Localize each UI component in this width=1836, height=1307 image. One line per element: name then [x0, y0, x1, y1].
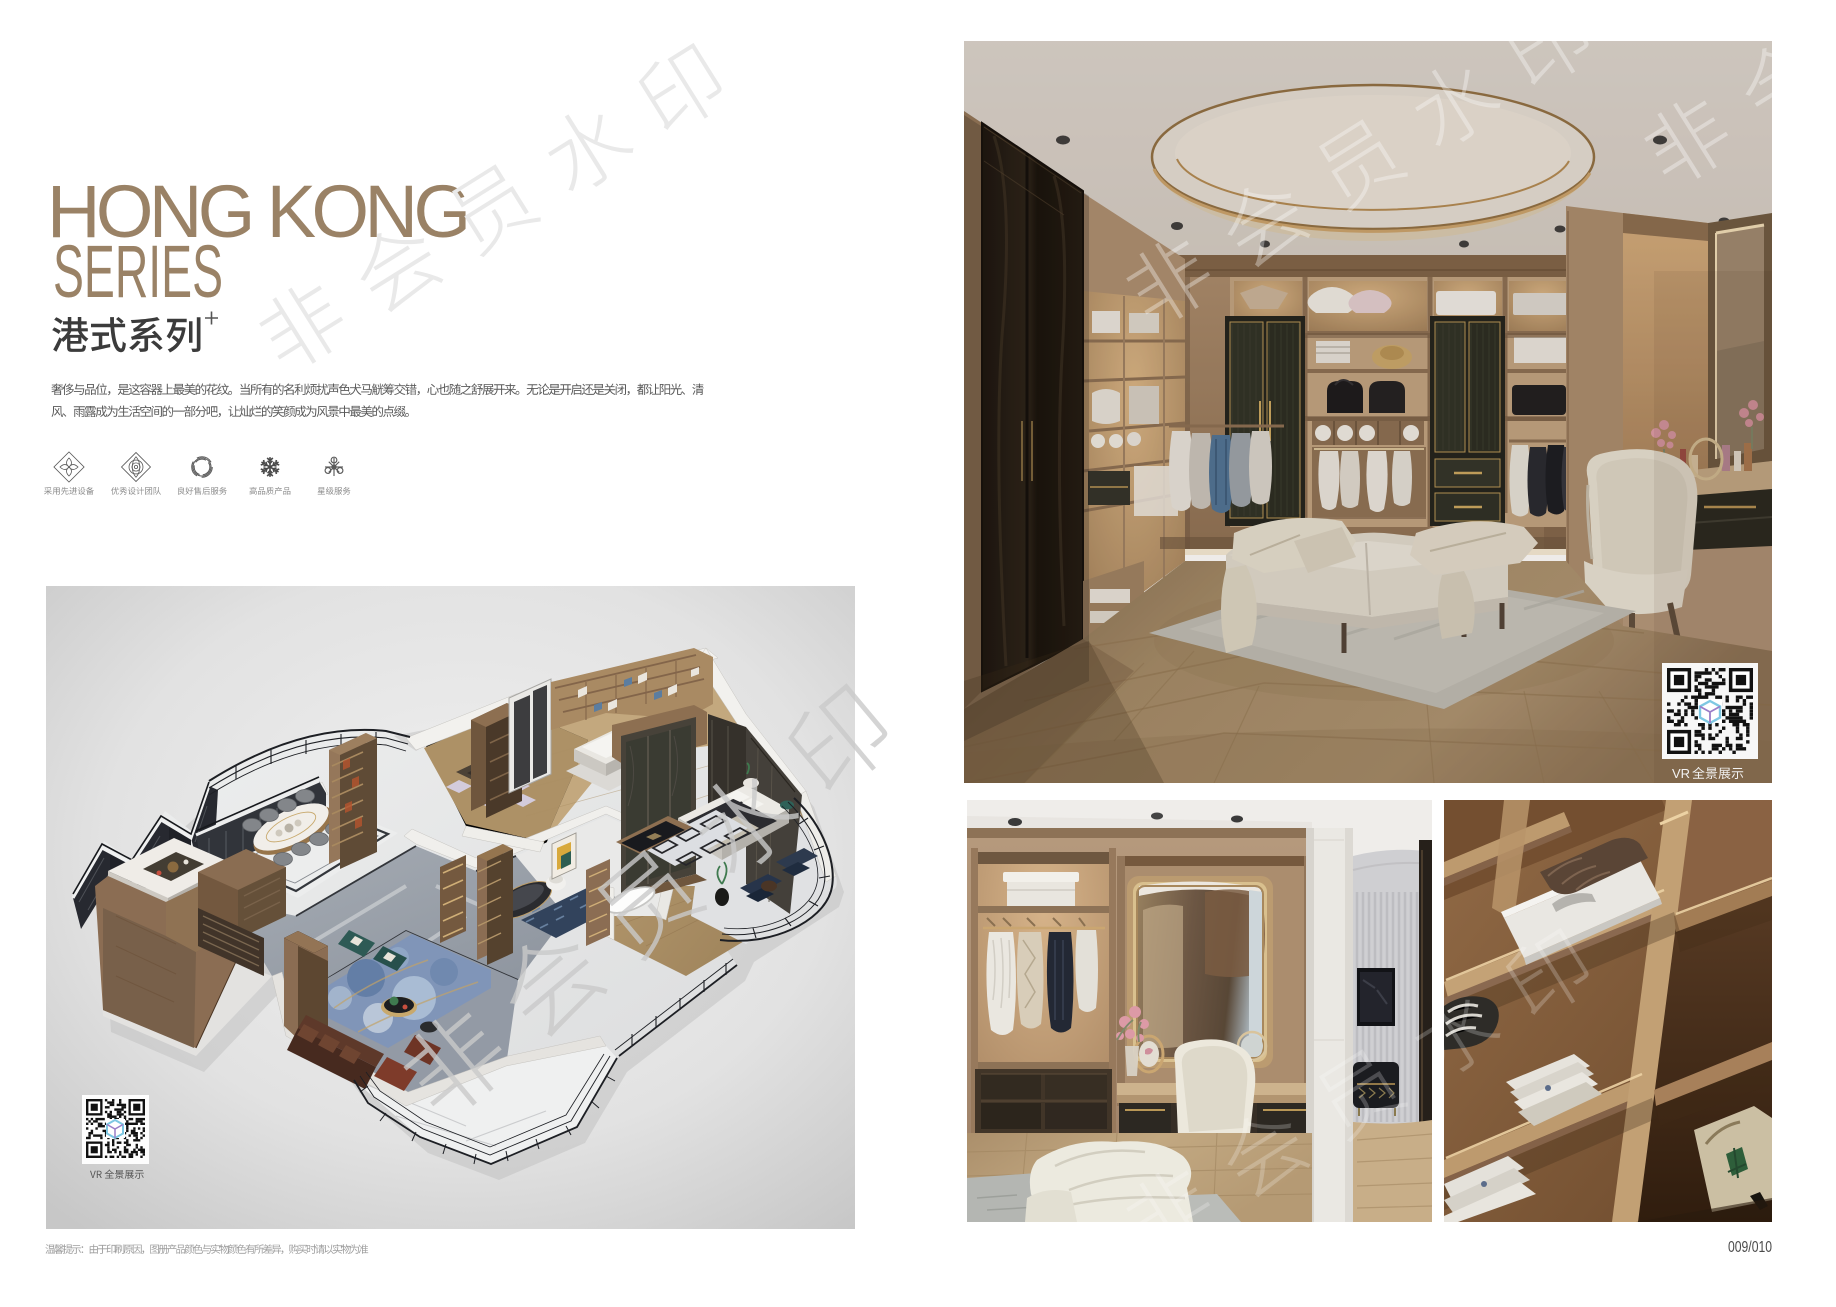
svg-text:009/010: 009/010	[1728, 1239, 1772, 1256]
svg-text:SERIES: SERIES	[53, 230, 223, 313]
svg-text:VR: VR	[1672, 766, 1690, 781]
